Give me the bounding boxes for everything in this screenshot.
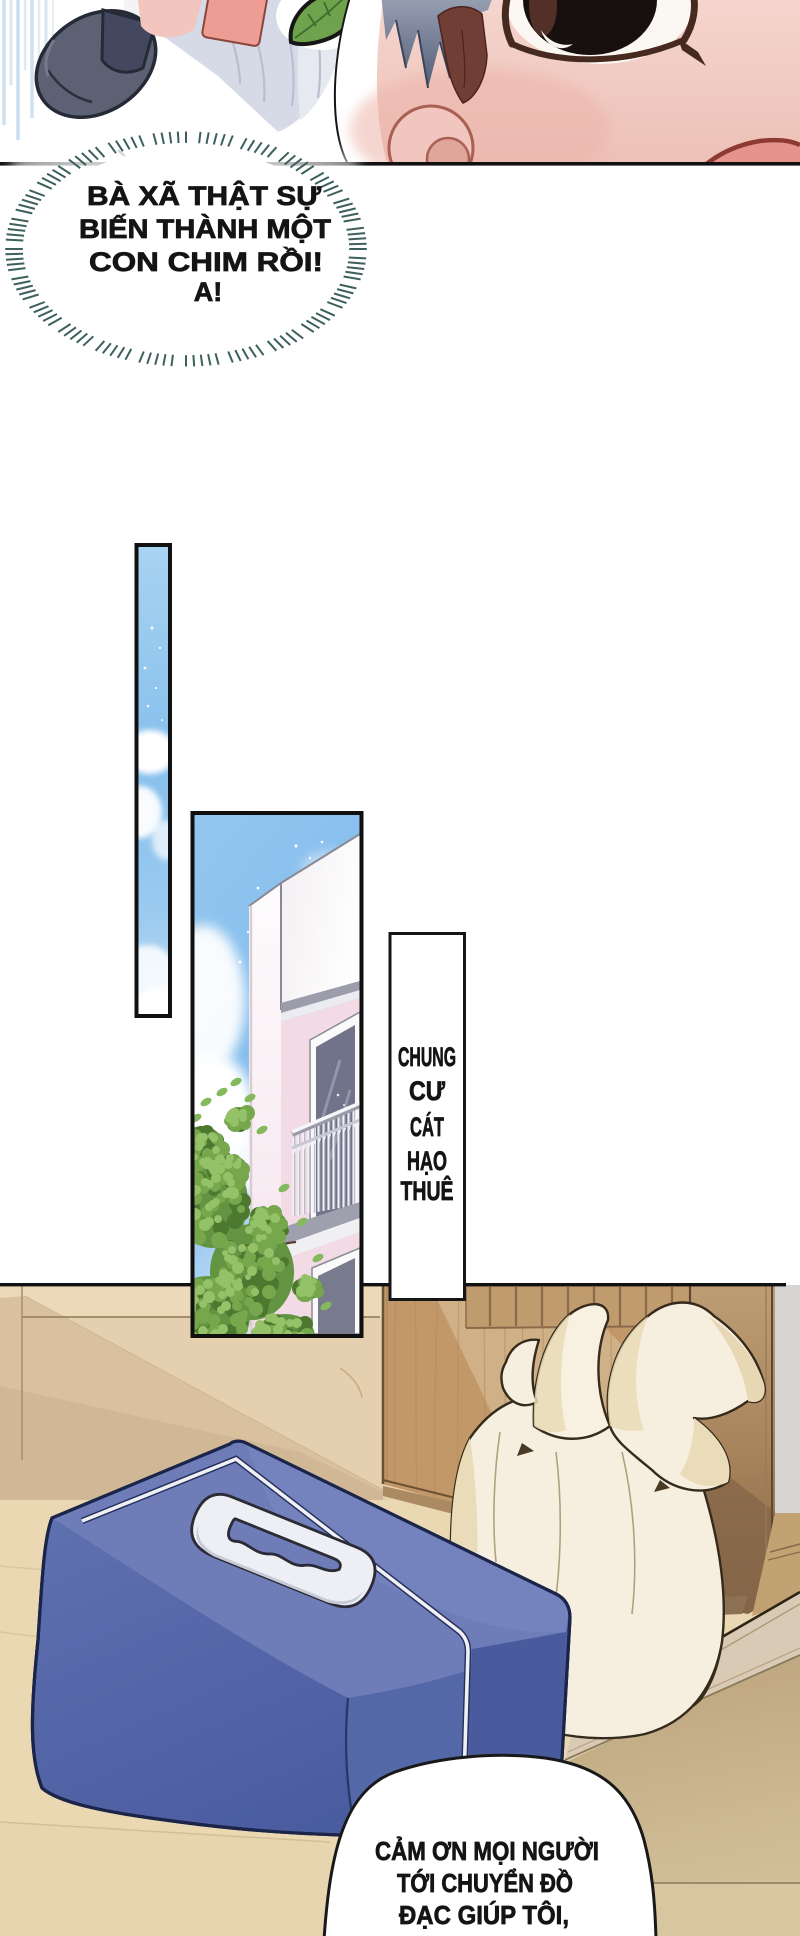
svg-text:ĐẠC GIÚP TÔI,: ĐẠC GIÚP TÔI, (399, 1900, 569, 1930)
svg-text:BIẾN THÀNH MỘT: BIẾN THÀNH MỘT (79, 213, 332, 244)
svg-text:CÁT: CÁT (410, 1111, 444, 1142)
svg-text:BÀ XÃ THẬT SỰ: BÀ XÃ THẬT SỰ (87, 180, 322, 211)
svg-text:A!: A! (194, 277, 223, 307)
svg-text:TỚI CHUYỂN ĐỒ: TỚI CHUYỂN ĐỒ (397, 1868, 573, 1898)
svg-text:CƯ: CƯ (409, 1076, 446, 1106)
svg-text:HẠO: HẠO (407, 1146, 447, 1176)
svg-text:CHUNG: CHUNG (398, 1042, 456, 1072)
svg-text:THUÊ: THUÊ (401, 1175, 454, 1206)
svg-text:CẢM ƠN MỌI NGƯỜI: CẢM ƠN MỌI NGƯỜI (375, 1836, 599, 1866)
svg-text:CON CHIM RỒI!: CON CHIM RỒI! (89, 246, 323, 277)
